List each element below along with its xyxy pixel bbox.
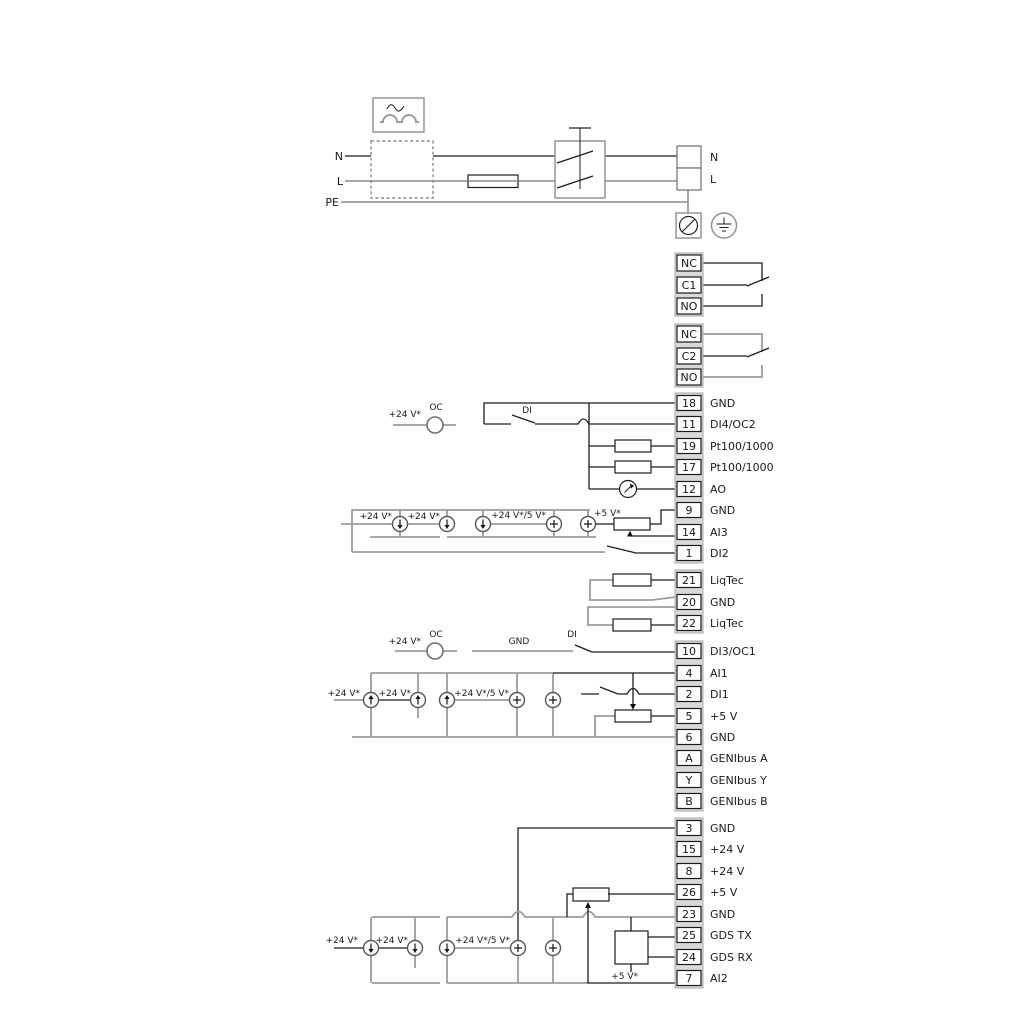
terminal-number: 8 [686, 865, 693, 878]
terminal-label: Pt100/1000 [710, 461, 774, 474]
terminal-label: DI3/OC1 [710, 645, 756, 658]
terminal-label: Pt100/1000 [710, 440, 774, 453]
terminal-label: N [710, 151, 718, 164]
terminal-number: C1 [682, 279, 697, 292]
terminal-label: +5 V [710, 886, 738, 899]
di-switch-icon [512, 415, 535, 423]
terminal-number: NC [681, 328, 697, 341]
terminal-number: NO [681, 300, 698, 313]
terminal-block-io2: 10DI3/OC14AI12DI15+5 V6GNDAGENIbus AYGEN… [675, 641, 768, 811]
terminal-cell [677, 146, 701, 168]
open-collector-icon [427, 643, 443, 659]
current-source-plus-icon [510, 693, 525, 708]
ai3-di2-section: +24 V* +24 V* +24 V*/5 V* +5 V* [341, 509, 676, 553]
terminal-number: 20 [682, 596, 696, 609]
changeover-contact-icon [747, 277, 769, 286]
pe-line-label-pe: PE [325, 196, 339, 209]
supply-label: +24 V* [407, 512, 440, 522]
terminal-number: 3 [686, 822, 693, 835]
terminal-label: GENIbus A [710, 752, 768, 765]
resistor-icon [613, 574, 651, 586]
terminal-number: 18 [682, 397, 696, 410]
terminal-block-io1: 18GND11DI4/OC219Pt100/100017Pt100/100012… [675, 393, 774, 563]
di3-oc1-section: +24 V* OC GND DI [388, 630, 676, 659]
analog-output-meter-icon [620, 481, 637, 498]
supply-label: +5 V* [594, 509, 621, 519]
terminal-number: 19 [682, 440, 696, 453]
wiring-diagram-page: N L PE +24 V* OC DI [0, 0, 1024, 1024]
di-switch-icon [607, 546, 636, 553]
input-module-dashed-box [371, 141, 433, 198]
terminal-label: DI4/OC2 [710, 418, 756, 431]
terminal-number: B [685, 795, 693, 808]
resistor-icon [613, 619, 651, 631]
power-circuit: N L PE [325, 98, 736, 238]
fuse-icon [468, 175, 518, 188]
terminal-label: GENIbus B [710, 795, 768, 808]
terminal-label: AI3 [710, 526, 728, 539]
supply-label: +24 V* [327, 689, 360, 699]
terminal-number: Y [685, 774, 693, 787]
relay-output-2 [701, 334, 769, 377]
terminal-label: GND [710, 596, 735, 609]
terminal-label: GND [710, 397, 735, 410]
wire [618, 689, 676, 695]
current-source-down-icon [440, 941, 455, 956]
terminal-label: DI2 [710, 547, 729, 560]
current-source-up-icon [440, 693, 455, 708]
resistor-icon [615, 440, 651, 452]
terminal-number: 4 [686, 667, 693, 680]
potentiometer-icon [573, 888, 609, 908]
current-source-down-icon [476, 517, 491, 532]
current-source-plus-icon [547, 517, 562, 532]
supply-label: +24 V*/5 V* [491, 511, 546, 521]
terminal-label: AI2 [710, 972, 728, 985]
terminal-label: GND [710, 822, 735, 835]
supply-label: +24 V* [325, 936, 358, 946]
gds-sensor-box [615, 931, 648, 964]
terminal-number: 22 [682, 617, 696, 630]
gds-supply-label: +5 V* [611, 972, 638, 982]
terminal-number: 24 [682, 951, 696, 964]
wire [553, 673, 676, 704]
di4-pt100-ao-section: +24 V* OC DI [388, 403, 676, 498]
terminal-label: GDS RX [710, 951, 753, 964]
wire [651, 580, 676, 625]
terminal-number: 21 [682, 574, 696, 587]
terminal-block-relay2: NCC2NO [675, 324, 703, 387]
terminal-label: LiqTec [710, 574, 744, 587]
terminal-number: 12 [682, 483, 696, 496]
terminal-label: AI1 [710, 667, 728, 680]
di-switch-icon [600, 687, 618, 694]
terminal-number: 26 [682, 886, 696, 899]
oc-label: OC [429, 403, 442, 413]
wire [518, 828, 676, 941]
terminal-label: L [710, 173, 717, 186]
current-source-down-icon [393, 517, 408, 532]
terminal-number: 25 [682, 929, 696, 942]
oc-label: OC [429, 630, 442, 640]
terminal-label: LiqTec [710, 617, 744, 630]
terminal-block-io3: 3GND15+24 V8+24 V26+5 V23GND25GDS TX24GD… [675, 818, 753, 988]
current-source-plus-icon [511, 941, 526, 956]
terminal-number: 11 [682, 418, 696, 431]
changeover-contact-icon [747, 348, 769, 357]
terminal-number: 6 [686, 731, 693, 744]
terminal-number: 10 [682, 645, 696, 658]
terminal-number: 14 [682, 526, 696, 539]
terminal-number: 5 [686, 710, 693, 723]
relay-output-1 [701, 263, 769, 306]
terminal-label: GND [710, 504, 735, 517]
current-source-up-icon [411, 693, 426, 708]
terminal-block-liqtec: 21LiqTec20GND22LiqTec [675, 570, 744, 633]
terminal-number: NO [681, 371, 698, 384]
current-source-down-icon [408, 941, 423, 956]
terminal-label: GDS TX [710, 929, 752, 942]
terminal-blocks: NLNCC1NONCC2NO18GND11DI4/OC219Pt100/1000… [675, 146, 774, 988]
terminal-number: 17 [682, 461, 696, 474]
terminal-label: GENIbus Y [710, 774, 767, 787]
gnd-label: GND [509, 637, 530, 647]
terminal-label: +24 V [710, 843, 745, 856]
potentiometer-icon [614, 518, 650, 537]
pe-line-label-l: L [337, 175, 344, 188]
terminal-label: +5 V [710, 710, 738, 723]
ai1-di1-section: +24 V* +24 V* +24 V*/5 V* [327, 673, 676, 737]
terminal-label: GND [710, 908, 735, 921]
terminal-number: 15 [682, 843, 696, 856]
mains-switch-icon [555, 128, 605, 198]
terminal-number: C2 [682, 350, 697, 363]
ac-supply-icon [373, 98, 424, 132]
di-label: DI [522, 406, 532, 416]
current-source-plus-icon [546, 693, 561, 708]
terminal-number: 9 [686, 504, 693, 517]
wire [535, 419, 676, 424]
liqtec-section [588, 574, 676, 631]
terminal-number: 7 [686, 972, 693, 985]
wire [372, 912, 676, 918]
resistor-icon [615, 461, 651, 473]
supply-label: +24 V* [359, 512, 392, 522]
supply-label: +24 V*/5 V* [454, 689, 509, 699]
supply-label: +24 V* [388, 637, 421, 647]
di-label: DI [567, 630, 577, 640]
supply-label: +24 V*/5 V* [455, 936, 510, 946]
terminal-number: 2 [686, 688, 693, 701]
potentiometer-icon [615, 704, 651, 722]
terminal-number: 23 [682, 908, 696, 921]
protective-earth-icon [712, 213, 737, 238]
terminal-cell [677, 168, 701, 190]
terminal-number: NC [681, 257, 697, 270]
terminal-block-relay1: NCC1NO [675, 253, 703, 316]
terminal-label: DI1 [710, 688, 729, 701]
supply-label: +24 V* [375, 936, 408, 946]
supply-label: +24 V* [378, 689, 411, 699]
current-source-up-icon [364, 693, 379, 708]
gds-ai2-section: +24 V* +24 V* +24 V*/5 V* +5 V* [325, 828, 676, 983]
pe-screw-terminal-icon [676, 213, 701, 238]
supply-label: +24 V* [388, 410, 421, 420]
terminal-label: AO [710, 483, 726, 496]
terminal-block-power_out: NL [677, 146, 718, 190]
di-switch-icon [575, 645, 592, 652]
open-collector-icon [427, 417, 443, 433]
pe-line-label-n: N [335, 150, 343, 163]
terminal-number: A [685, 752, 693, 765]
wiring-diagram: N L PE +24 V* OC DI [0, 0, 1024, 1024]
terminal-label: +24 V [710, 865, 745, 878]
terminal-label: GND [710, 731, 735, 744]
terminal-number: 1 [686, 547, 693, 560]
current-source-down-icon [440, 517, 455, 532]
current-source-plus-icon [546, 941, 561, 956]
wire [701, 263, 762, 306]
